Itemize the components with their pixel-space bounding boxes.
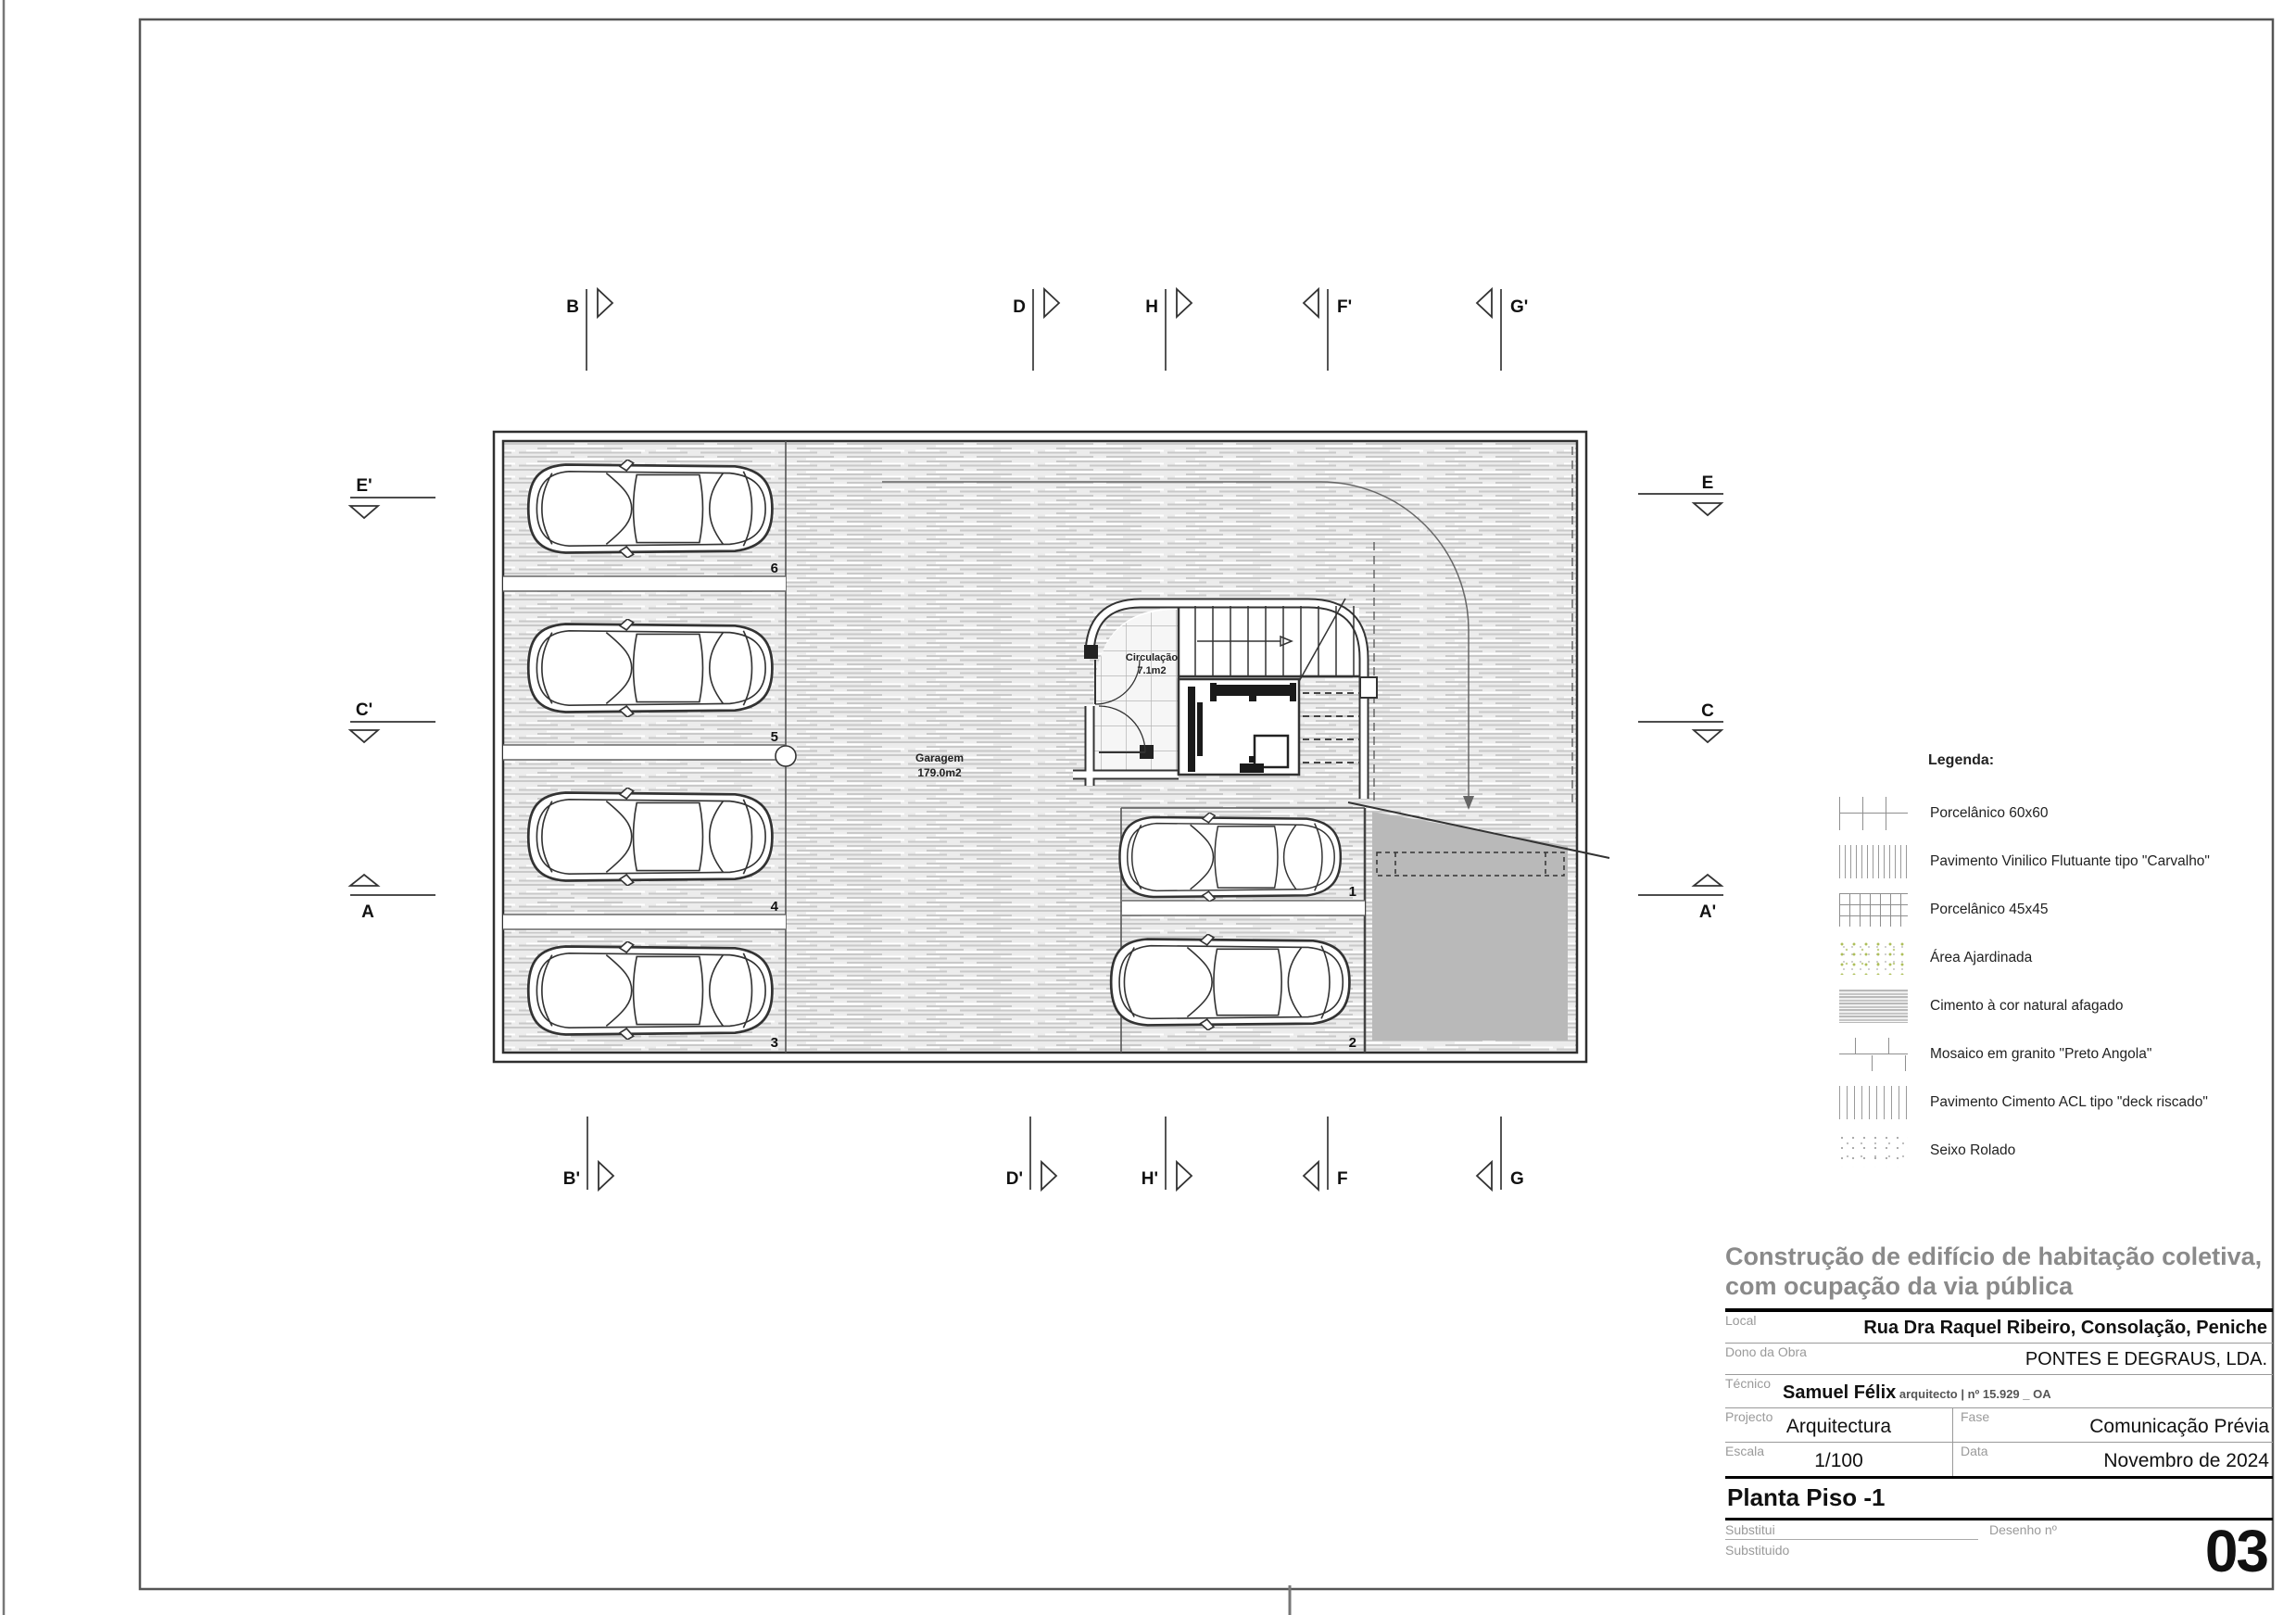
section-marker-f-prime: F' [1304,289,1352,371]
svg-text:E: E [1702,473,1714,493]
technician-value: Samuel Félix arquitecto | nº 15.929 _ OA [1783,1382,2273,1404]
section-marker-a-prime: A' [1638,875,1723,922]
project-title: Construção de edifício de habitação cole… [1725,1242,2273,1312]
car-6 [528,460,772,558]
car-1 [1119,813,1340,902]
bottom-row: Substitui Substituido Desenho nº 03 [1725,1520,2273,1558]
technician-credentials: arquitecto | nº 15.929 _ OA [1896,1387,2050,1401]
legend-item: Pavimento Vinilico Flutuante tipo "Carva… [1839,838,2275,886]
legend-item: Seixo Rolado [1839,1127,2275,1175]
swatch-seixo-icon [1839,1134,1908,1167]
project-cell: Projecto Arquitectura [1725,1408,1952,1442]
car-2 [1111,934,1349,1030]
swatch-acl-icon [1839,1086,1908,1119]
section-marker-b: B [566,289,612,371]
stall-number-3: 3 [771,1035,778,1051]
legend-item-label: Seixo Rolado [1930,1142,2015,1159]
legend-title: Legenda: [1928,752,2275,769]
replaces-cell: Substitui Substituido [1725,1520,1989,1558]
svg-text:A: A [361,902,374,922]
svg-text:F': F' [1337,297,1352,317]
section-marker-b-prime: B' [563,1117,613,1190]
drawing-sheet: Circulação 7.1m2 6 5 4 3 1 2 [0,0,2296,1615]
date-cell: Data Novembro de 2024 [1952,1443,2273,1476]
legend-item-label: Mosaico em granito "Preto Angola" [1930,1046,2151,1063]
replaced-label: Substituido [1725,1544,1989,1558]
car-3 [528,941,772,1040]
svg-text:E': E' [356,476,372,496]
swatch-mosaico-icon [1839,1038,1908,1071]
phase-value: Comunicação Prévia [1961,1416,2273,1438]
section-marker-c-prime: C' [350,700,435,742]
svg-text:B: B [566,297,579,317]
project-title-line1: Construção de edifício de habitação cole… [1725,1242,2273,1271]
legend-item: Pavimento Cimento ACL tipo "deck riscado… [1839,1079,2275,1127]
legend-item-label: Cimento à cor natural afagado [1930,998,2124,1015]
car-5 [528,619,772,717]
drawing-number-cell: Desenho nº 03 [1989,1520,2273,1558]
stall-number-1: 1 [1349,884,1356,900]
svg-text:A': A' [1699,902,1716,922]
drawing-title: Planta Piso -1 [1725,1479,2273,1520]
phase-cell: Fase Comunicação Prévia [1952,1408,2273,1442]
section-marker-e-prime: E' [350,476,435,518]
legend-item: Mosaico em granito "Preto Angola" [1839,1030,2275,1079]
swatch-cimento-icon [1839,990,1908,1023]
section-marker-a: A [350,875,435,922]
owner-value: PONTES E DEGRAUS, LDA. [1725,1349,2273,1370]
date-value: Novembro de 2024 [1961,1450,2273,1472]
scale-cell: Escala 1/100 [1725,1443,1952,1476]
svg-text:H: H [1145,297,1158,317]
technician-row: Técnico Samuel Félix arquitecto | nº 15.… [1725,1375,2273,1408]
drawing-number: 03 [2205,1526,2267,1576]
section-marker-h: H [1145,289,1192,371]
svg-text:F: F [1337,1169,1348,1189]
local-value: Rua Dra Raquel Ribeiro, Consolação, Peni… [1725,1318,2273,1339]
car-4 [528,788,772,886]
stall-number-4: 4 [771,899,779,915]
svg-text:D: D [1013,297,1026,317]
section-marker-g-prime: G' [1477,289,1528,371]
swatch-porcelanico-60-icon [1839,797,1908,830]
section-marker-f: F [1304,1117,1348,1190]
section-marker-d-prime: D' [1006,1117,1056,1190]
section-marker-d: D [1013,289,1059,371]
section-marker-h-prime: H' [1142,1117,1192,1190]
svg-text:H': H' [1142,1169,1158,1189]
circulation-label: Circulação [1126,652,1179,663]
garage-area: 179.0m2 [917,766,962,779]
legend-item-label: Porcelânico 45x45 [1930,902,2049,918]
svg-text:C': C' [356,700,372,720]
legend-item: Área Ajardinada [1839,934,2275,982]
section-marker-e: E [1638,473,1723,515]
project-title-line2: com ocupação da via pública [1725,1271,2273,1301]
legend-item-label: Área Ajardinada [1930,950,2032,966]
section-marker-c: C [1638,701,1723,742]
stall-number-2: 2 [1349,1035,1356,1051]
legend-item-label: Pavimento Vinilico Flutuante tipo "Carva… [1930,853,2210,870]
svg-text:G: G [1510,1169,1524,1189]
stall-number-6: 6 [771,561,778,576]
legend: Legenda: Porcelânico 60x60 Pavimento Vin… [1839,752,2275,1175]
structural-column [776,746,796,766]
garage-label: Garagem [915,751,964,764]
svg-text:C: C [1701,701,1714,721]
svg-text:B': B' [563,1169,580,1189]
owner-row: Dono da Obra PONTES E DEGRAUS, LDA. [1725,1344,2273,1375]
swatch-area-ajardinada-icon [1839,941,1908,975]
garage-plan: Circulação 7.1m2 6 5 4 3 1 2 [494,432,1609,1062]
swatch-vinilico-icon [1839,845,1908,878]
title-block: Construção de edifício de habitação cole… [1725,1242,2273,1558]
legend-item-label: Porcelânico 60x60 [1930,805,2049,822]
legend-item: Porcelânico 45x45 [1839,886,2275,934]
legend-item-label: Pavimento Cimento ACL tipo "deck riscado… [1930,1094,2208,1111]
circulation-area: 7.1m2 [1137,665,1166,676]
legend-item: Cimento à cor natural afagado [1839,982,2275,1030]
svg-text:G': G' [1510,297,1528,317]
section-marker-g: G [1477,1117,1524,1190]
legend-item: Porcelânico 60x60 [1839,789,2275,838]
swatch-porcelanico-45-icon [1839,893,1908,927]
elevator [1179,679,1299,775]
replaces-label: Substitui [1725,1523,1978,1537]
stall-number-5: 5 [771,729,778,745]
svg-text:D': D' [1006,1169,1023,1189]
scale-date-row: Escala 1/100 Data Novembro de 2024 [1725,1443,2273,1479]
local-row: Local Rua Dra Raquel Ribeiro, Consolação… [1725,1312,2273,1344]
technician-name: Samuel Félix [1783,1382,1896,1403]
project-phase-row: Projecto Arquitectura Fase Comunicação P… [1725,1408,2273,1443]
